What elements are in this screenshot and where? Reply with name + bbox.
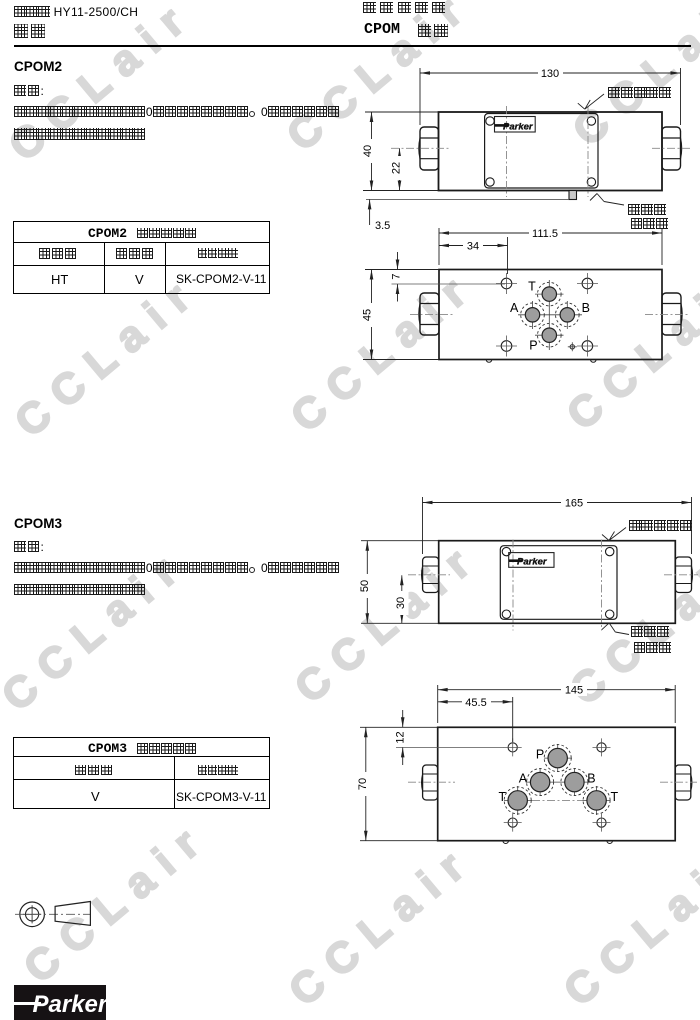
svg-text:45.5: 45.5 xyxy=(465,697,486,709)
svg-text:30: 30 xyxy=(395,597,407,609)
svg-text:130: 130 xyxy=(541,68,559,80)
svg-text:P: P xyxy=(536,748,544,762)
svg-text:165: 165 xyxy=(565,498,583,510)
svg-text:22: 22 xyxy=(390,162,402,174)
svg-text:34: 34 xyxy=(467,241,479,253)
svg-text:T: T xyxy=(610,790,618,804)
svg-text:7: 7 xyxy=(390,273,402,279)
svg-text:50: 50 xyxy=(359,580,371,592)
svg-text:45: 45 xyxy=(361,309,373,321)
svg-text:Parker: Parker xyxy=(503,122,534,133)
svg-text:P: P xyxy=(529,339,537,353)
svg-text:145: 145 xyxy=(565,685,583,697)
svg-text:70: 70 xyxy=(357,778,369,790)
svg-text:B: B xyxy=(587,772,595,786)
svg-text:12: 12 xyxy=(394,731,406,743)
svg-text:T: T xyxy=(498,790,506,804)
svg-text:B: B xyxy=(582,301,590,315)
svg-text:A: A xyxy=(519,772,528,786)
svg-text:111.5: 111.5 xyxy=(532,228,558,240)
svg-text:40: 40 xyxy=(362,145,374,157)
svg-text:T: T xyxy=(528,280,536,294)
svg-text:Parker: Parker xyxy=(517,557,548,568)
svg-text:A: A xyxy=(510,301,519,315)
